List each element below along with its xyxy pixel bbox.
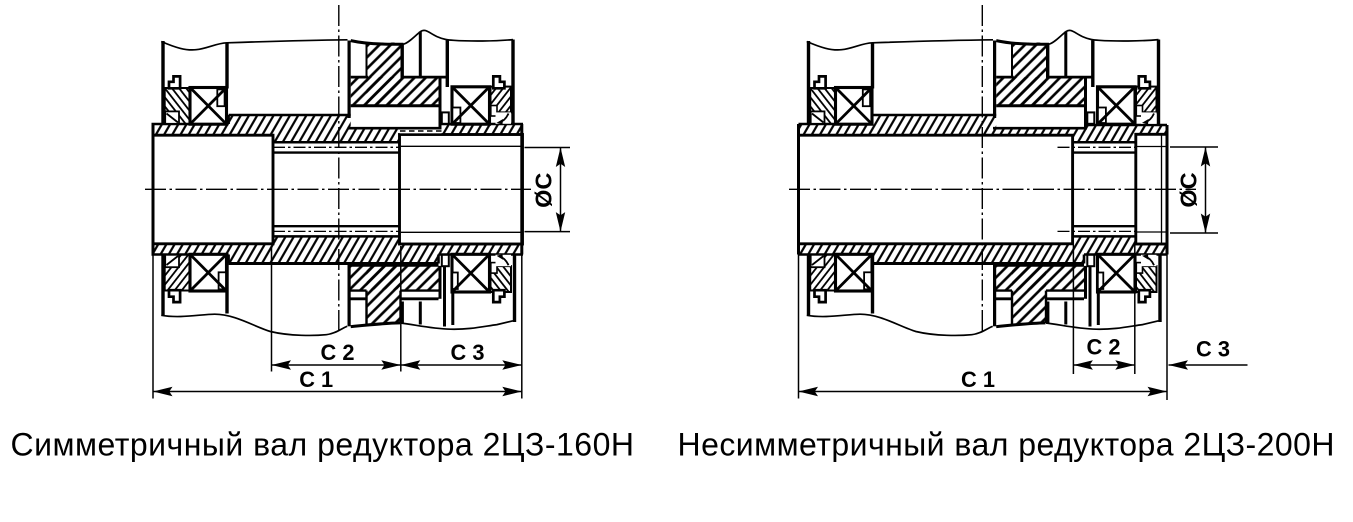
svg-text:Несимметричный вал редуктора 2: Несимметричный вал редуктора 2ЦЗ-200Н — [678, 427, 1335, 463]
svg-text:Симметричный вал редуктора 2ЦЗ: Симметричный вал редуктора 2ЦЗ-160Н — [11, 427, 635, 463]
svg-text:C 1: C 1 — [961, 367, 995, 392]
svg-text:ØC: ØC — [1176, 172, 1202, 207]
svg-text:ØC: ØC — [531, 173, 557, 208]
svg-text:C 2: C 2 — [321, 340, 355, 365]
svg-text:C 1: C 1 — [299, 367, 333, 392]
svg-text:C 3: C 3 — [1196, 337, 1230, 362]
svg-text:C 3: C 3 — [451, 340, 485, 365]
svg-text:C 2: C 2 — [1087, 335, 1121, 360]
